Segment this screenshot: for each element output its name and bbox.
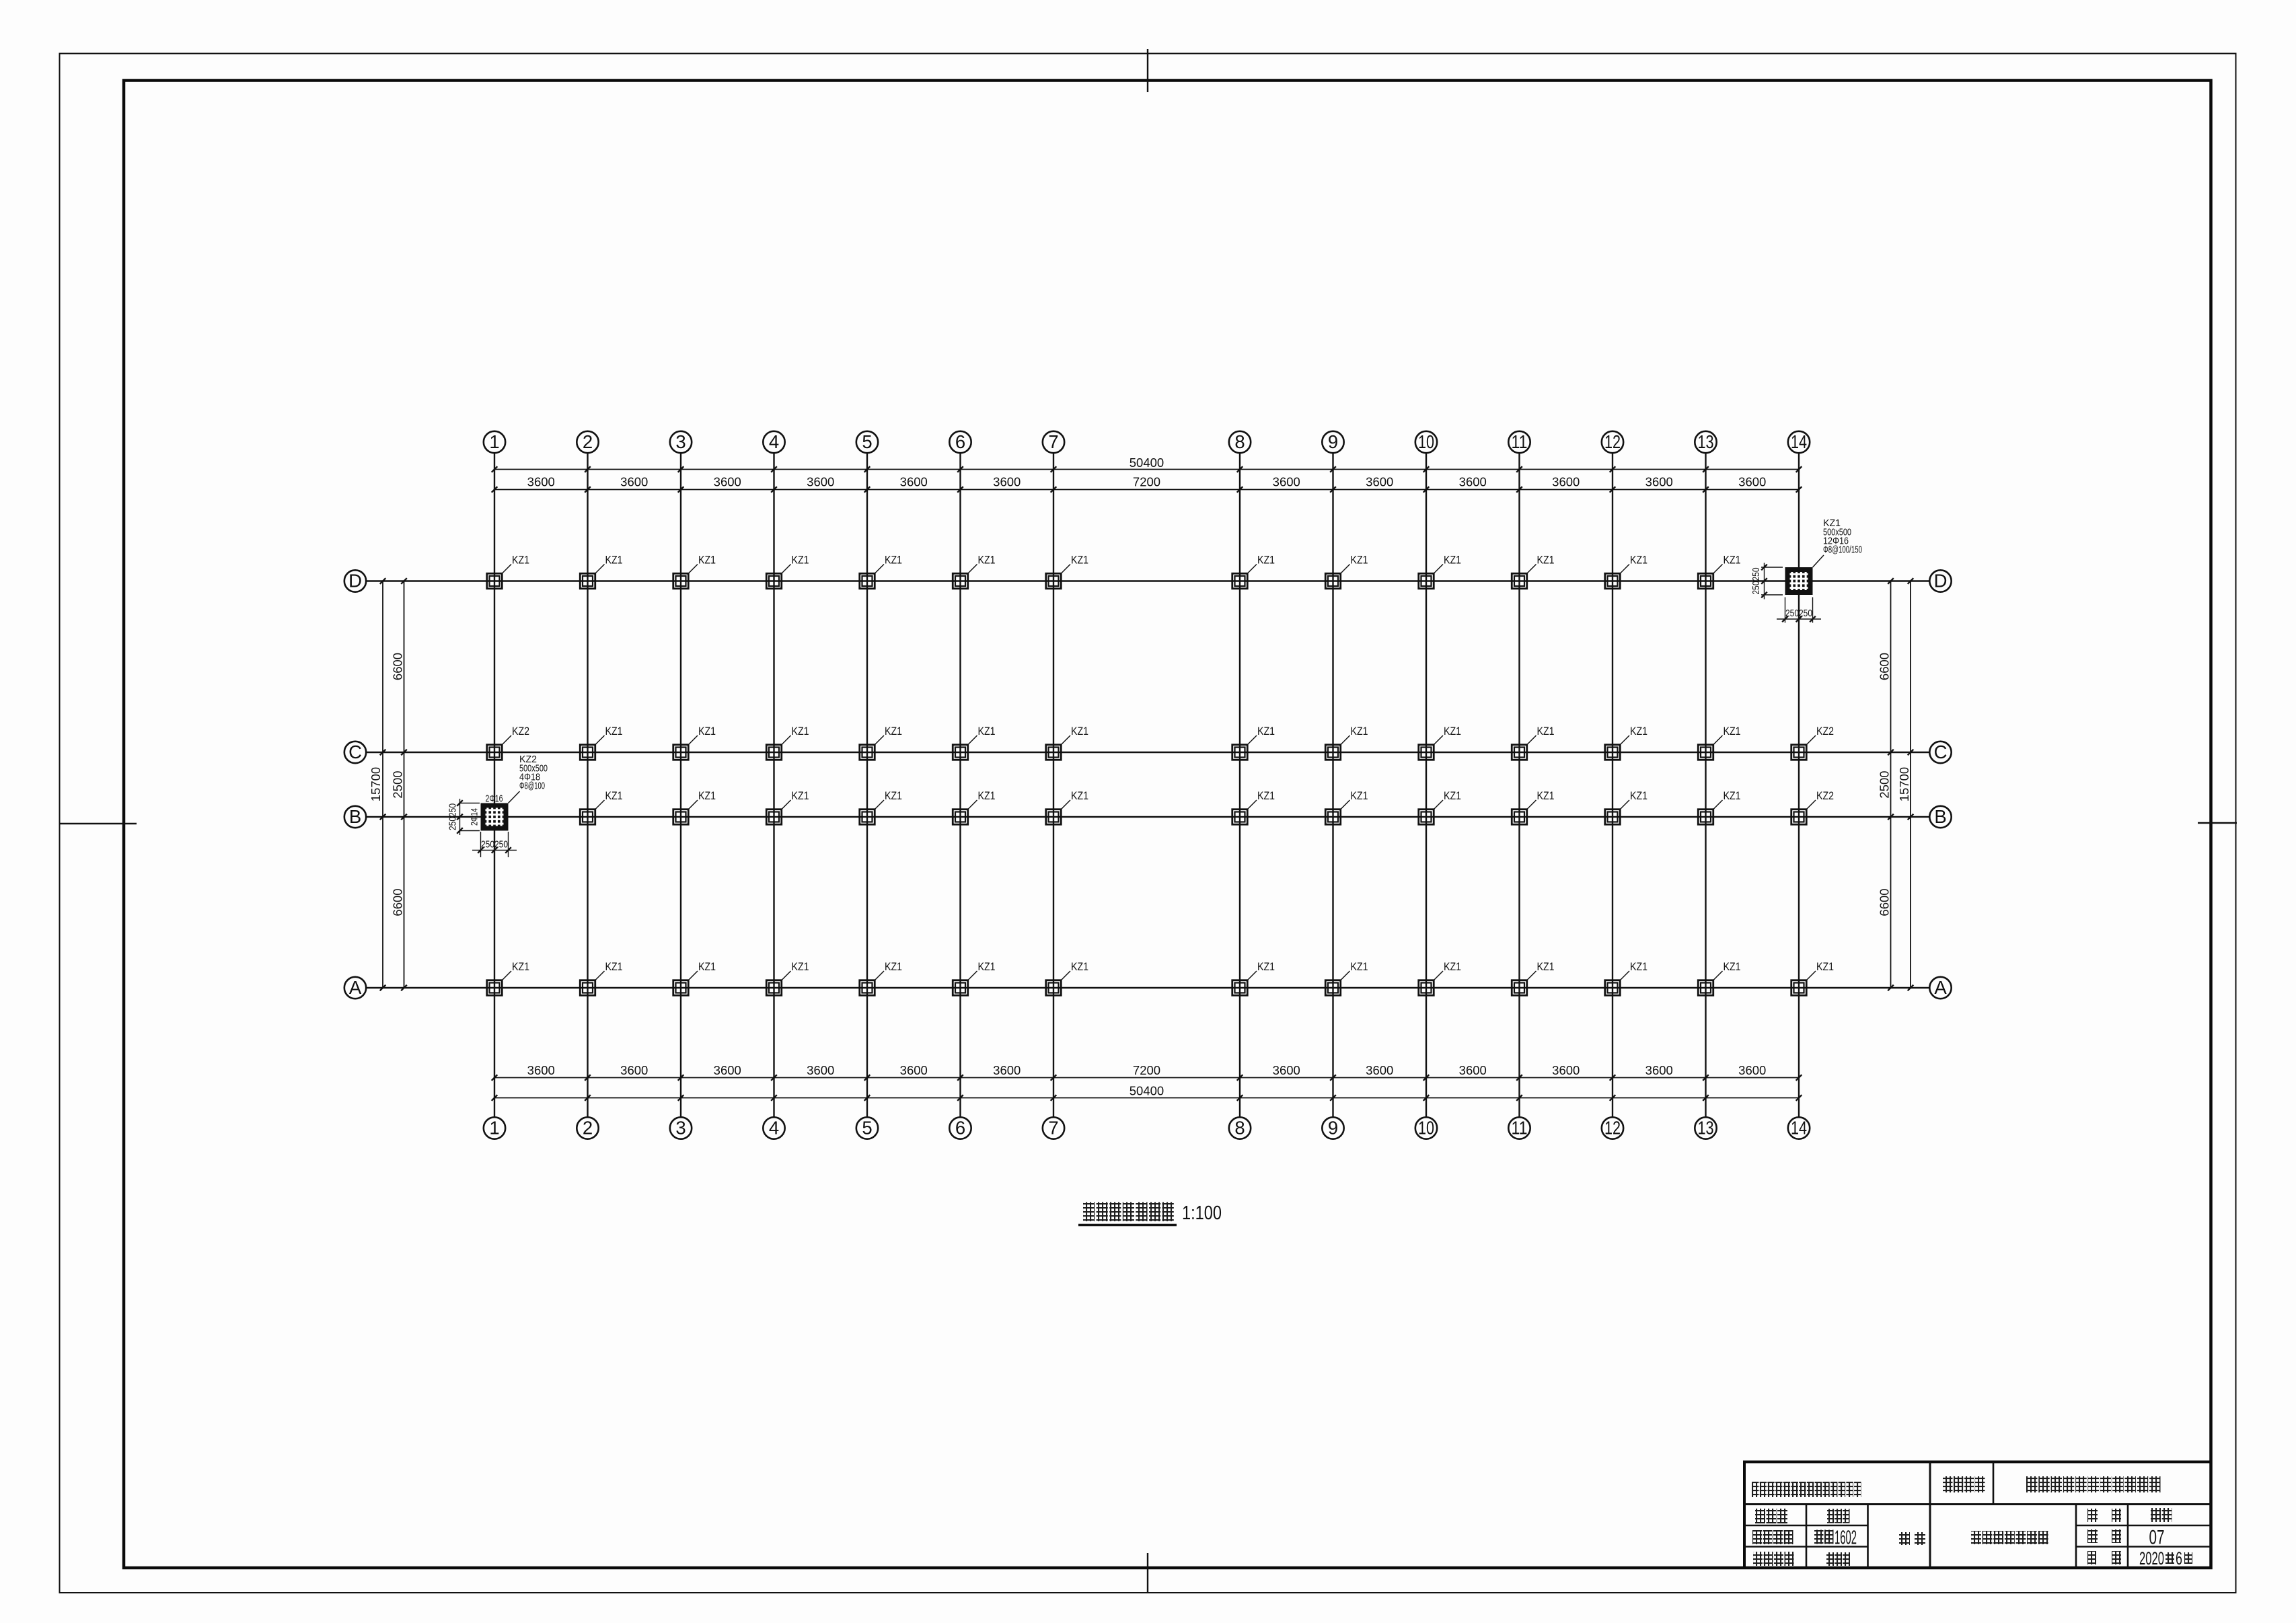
svg-text:KZ1: KZ1 bbox=[698, 790, 716, 802]
svg-text:3600: 3600 bbox=[1273, 1063, 1300, 1077]
svg-text:KZ1: KZ1 bbox=[1444, 554, 1461, 567]
svg-text:KZ1: KZ1 bbox=[1351, 790, 1368, 802]
svg-text:2500: 2500 bbox=[391, 770, 405, 798]
svg-text:KZ1: KZ1 bbox=[978, 961, 996, 973]
svg-text:KZ1: KZ1 bbox=[605, 961, 623, 973]
svg-text:3600: 3600 bbox=[620, 475, 648, 489]
svg-text:2Φ14: 2Φ14 bbox=[469, 808, 480, 826]
svg-text:3600: 3600 bbox=[620, 1063, 648, 1077]
svg-text:KZ1: KZ1 bbox=[1257, 790, 1275, 802]
svg-text:3600: 3600 bbox=[993, 1063, 1021, 1077]
svg-text:6: 6 bbox=[955, 431, 965, 452]
svg-text:KZ1: KZ1 bbox=[1351, 554, 1368, 567]
svg-text:KZ1: KZ1 bbox=[1537, 790, 1555, 802]
svg-text:5: 5 bbox=[862, 1118, 872, 1139]
svg-text:3600: 3600 bbox=[900, 1063, 928, 1077]
svg-text:1:100: 1:100 bbox=[1182, 1202, 1222, 1224]
svg-text:KZ1: KZ1 bbox=[1630, 790, 1647, 802]
svg-text:3600: 3600 bbox=[993, 475, 1021, 489]
svg-text:KZ1: KZ1 bbox=[1257, 725, 1275, 737]
svg-text:KZ2: KZ2 bbox=[1816, 725, 1834, 737]
svg-text:11: 11 bbox=[1512, 431, 1528, 452]
svg-text:10: 10 bbox=[1418, 1118, 1434, 1139]
svg-text:1: 1 bbox=[489, 431, 499, 452]
svg-text:3600: 3600 bbox=[1645, 475, 1673, 489]
svg-text:9: 9 bbox=[1328, 1118, 1338, 1139]
svg-text:KZ1: KZ1 bbox=[885, 961, 902, 973]
svg-text:KZ1: KZ1 bbox=[1444, 790, 1461, 802]
svg-text:KZ1: KZ1 bbox=[792, 725, 809, 737]
svg-text:KZ1: KZ1 bbox=[792, 790, 809, 802]
svg-text:KZ1: KZ1 bbox=[1630, 554, 1647, 567]
svg-text:250250: 250250 bbox=[1750, 568, 1762, 595]
svg-text:KZ1: KZ1 bbox=[978, 725, 996, 737]
svg-text:KZ1: KZ1 bbox=[1630, 725, 1647, 737]
svg-text:15700: 15700 bbox=[1897, 767, 1911, 801]
svg-text:250250: 250250 bbox=[1785, 608, 1812, 619]
svg-text:KZ1: KZ1 bbox=[978, 554, 996, 567]
svg-text:50400: 50400 bbox=[1130, 456, 1164, 470]
svg-text:KZ1: KZ1 bbox=[1071, 961, 1088, 973]
svg-text:2: 2 bbox=[583, 1118, 593, 1139]
svg-text:KZ1: KZ1 bbox=[605, 790, 623, 802]
svg-text:10: 10 bbox=[1418, 431, 1434, 452]
svg-text:7: 7 bbox=[1048, 1118, 1058, 1139]
svg-text:12: 12 bbox=[1604, 1118, 1621, 1139]
svg-text:7200: 7200 bbox=[1133, 475, 1160, 489]
svg-text:KZ1: KZ1 bbox=[698, 725, 716, 737]
svg-text:3600: 3600 bbox=[1459, 1063, 1487, 1077]
svg-text:2: 2 bbox=[583, 431, 593, 452]
svg-text:14: 14 bbox=[1791, 431, 1807, 452]
svg-text:3600: 3600 bbox=[1459, 475, 1487, 489]
svg-text:3600: 3600 bbox=[807, 1063, 834, 1077]
svg-text:14: 14 bbox=[1791, 1118, 1807, 1139]
svg-text:6600: 6600 bbox=[391, 653, 405, 680]
svg-text:3600: 3600 bbox=[1552, 1063, 1580, 1077]
svg-text:9: 9 bbox=[1328, 431, 1338, 452]
svg-text:3: 3 bbox=[675, 1118, 686, 1139]
svg-text:3600: 3600 bbox=[1366, 1063, 1393, 1077]
svg-text:3600: 3600 bbox=[714, 1063, 741, 1077]
svg-text:5: 5 bbox=[862, 431, 872, 452]
svg-text:KZ1: KZ1 bbox=[792, 554, 809, 567]
svg-text:50400: 50400 bbox=[1130, 1084, 1164, 1098]
svg-text:KZ1: KZ1 bbox=[512, 961, 529, 973]
svg-text:KZ1: KZ1 bbox=[1724, 961, 1741, 973]
svg-text:KZ1: KZ1 bbox=[885, 554, 902, 567]
svg-text:KZ1: KZ1 bbox=[605, 554, 623, 567]
svg-text:250250: 250250 bbox=[481, 839, 508, 851]
svg-text:3: 3 bbox=[675, 431, 686, 452]
svg-text:12: 12 bbox=[1604, 431, 1621, 452]
svg-text:KZ1: KZ1 bbox=[1257, 554, 1275, 567]
svg-text:7200: 7200 bbox=[1133, 1063, 1160, 1077]
svg-text:3600: 3600 bbox=[900, 475, 928, 489]
svg-text:KZ1: KZ1 bbox=[512, 554, 529, 567]
svg-text:KZ1: KZ1 bbox=[1724, 554, 1741, 567]
svg-text:3600: 3600 bbox=[527, 475, 555, 489]
svg-text:13: 13 bbox=[1698, 1118, 1714, 1139]
svg-text:6600: 6600 bbox=[1878, 653, 1892, 680]
svg-text:7: 7 bbox=[1048, 431, 1058, 452]
svg-text:2500: 2500 bbox=[1878, 770, 1892, 798]
svg-text:KZ1: KZ1 bbox=[1351, 725, 1368, 737]
svg-text:250250: 250250 bbox=[447, 803, 459, 830]
svg-text:1602: 1602 bbox=[1835, 1527, 1857, 1549]
svg-text:KZ1: KZ1 bbox=[1351, 961, 1368, 973]
svg-text:KZ1: KZ1 bbox=[885, 790, 902, 802]
svg-text:KZ1: KZ1 bbox=[1537, 961, 1555, 973]
svg-text:A: A bbox=[349, 977, 362, 998]
svg-text:3600: 3600 bbox=[1738, 1063, 1766, 1077]
svg-text:KZ1: KZ1 bbox=[1444, 961, 1461, 973]
svg-text:07: 07 bbox=[2149, 1527, 2165, 1549]
svg-text:1: 1 bbox=[489, 1118, 499, 1139]
svg-text:3600: 3600 bbox=[807, 475, 834, 489]
svg-text:Φ8@100: Φ8@100 bbox=[519, 781, 545, 792]
svg-text:KZ1: KZ1 bbox=[1071, 790, 1088, 802]
svg-text:KZ2: KZ2 bbox=[1816, 790, 1834, 802]
svg-text:KZ1: KZ1 bbox=[1257, 961, 1275, 973]
svg-text:13: 13 bbox=[1698, 431, 1714, 452]
svg-text:2Φ16: 2Φ16 bbox=[486, 793, 503, 805]
svg-text:KZ1: KZ1 bbox=[605, 725, 623, 737]
svg-text:KZ1: KZ1 bbox=[792, 961, 809, 973]
svg-text:KZ2: KZ2 bbox=[512, 725, 529, 737]
svg-text:KZ1: KZ1 bbox=[698, 961, 716, 973]
svg-text:Φ8@100/150: Φ8@100/150 bbox=[1823, 544, 1862, 556]
svg-text:D: D bbox=[1934, 571, 1948, 591]
svg-text:6600: 6600 bbox=[391, 888, 405, 916]
svg-text:B: B bbox=[349, 806, 361, 827]
svg-text:2020: 2020 bbox=[2139, 1548, 2164, 1568]
svg-text:KZ1: KZ1 bbox=[698, 554, 716, 567]
svg-text:3600: 3600 bbox=[1645, 1063, 1673, 1077]
svg-text:3600: 3600 bbox=[1366, 475, 1393, 489]
svg-text:KZ1: KZ1 bbox=[1816, 961, 1834, 973]
svg-text:A: A bbox=[1934, 977, 1947, 998]
svg-text:3600: 3600 bbox=[527, 1063, 555, 1077]
svg-text:6: 6 bbox=[955, 1118, 965, 1139]
svg-text:KZ1: KZ1 bbox=[1071, 725, 1088, 737]
svg-text:6: 6 bbox=[2176, 1548, 2182, 1568]
svg-text:4: 4 bbox=[769, 1118, 779, 1139]
svg-text:KZ1: KZ1 bbox=[978, 790, 996, 802]
svg-text:15700: 15700 bbox=[369, 767, 383, 801]
svg-text:8: 8 bbox=[1234, 1118, 1245, 1139]
svg-text:C: C bbox=[348, 742, 362, 762]
svg-text:3600: 3600 bbox=[714, 475, 741, 489]
svg-text:3600: 3600 bbox=[1738, 475, 1766, 489]
svg-text:B: B bbox=[1934, 806, 1946, 827]
svg-text:KZ1: KZ1 bbox=[1724, 725, 1741, 737]
svg-text:KZ1: KZ1 bbox=[1537, 725, 1555, 737]
svg-text:KZ1: KZ1 bbox=[1444, 725, 1461, 737]
svg-text:KZ1: KZ1 bbox=[1724, 790, 1741, 802]
svg-text:11: 11 bbox=[1512, 1118, 1528, 1139]
svg-text:KZ1: KZ1 bbox=[1071, 554, 1088, 567]
svg-text:D: D bbox=[348, 571, 362, 591]
svg-text:6600: 6600 bbox=[1878, 888, 1892, 916]
svg-text:3600: 3600 bbox=[1552, 475, 1580, 489]
svg-text:KZ1: KZ1 bbox=[885, 725, 902, 737]
svg-text:C: C bbox=[1934, 742, 1948, 762]
svg-text:KZ1: KZ1 bbox=[1630, 961, 1647, 973]
svg-text:3600: 3600 bbox=[1273, 475, 1300, 489]
svg-text:8: 8 bbox=[1234, 431, 1245, 452]
svg-text:4: 4 bbox=[769, 431, 779, 452]
svg-text:KZ1: KZ1 bbox=[1537, 554, 1555, 567]
